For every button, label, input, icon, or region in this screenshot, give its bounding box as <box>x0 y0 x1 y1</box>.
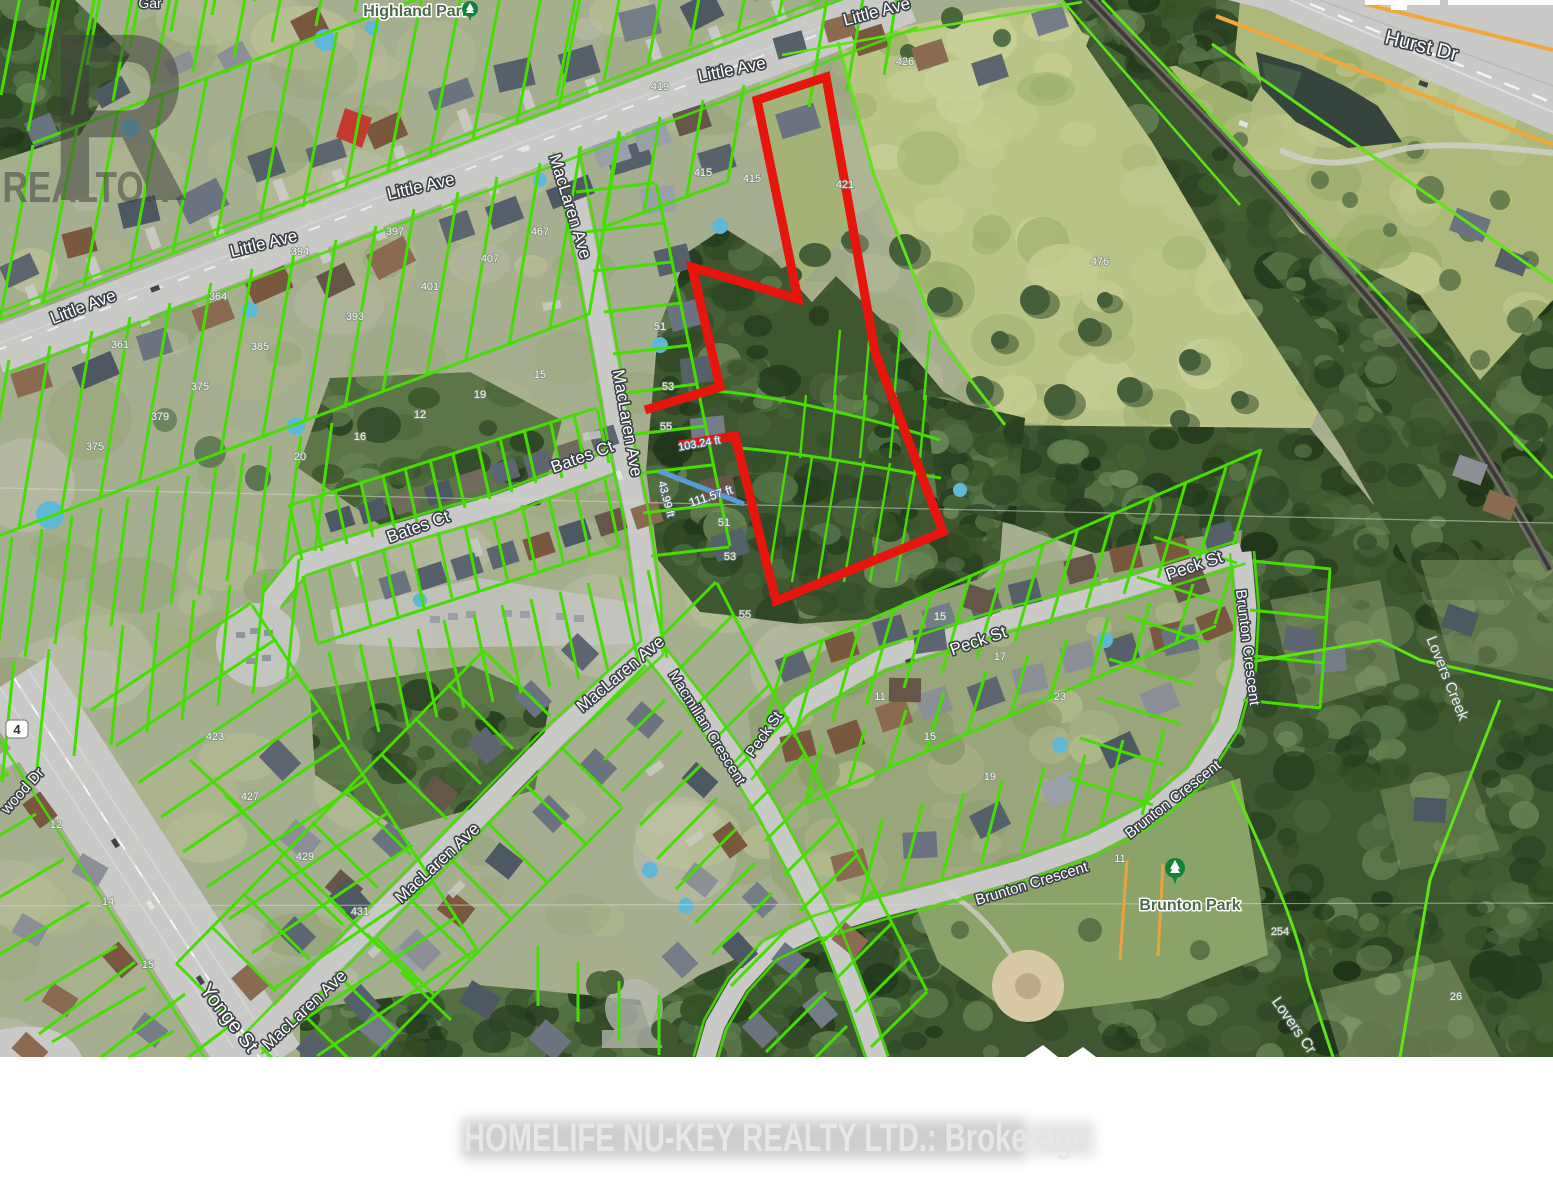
svg-text:379: 379 <box>151 411 169 423</box>
svg-text:REALTOR: REALTOR <box>2 163 169 212</box>
svg-text:407: 407 <box>481 253 499 265</box>
svg-text:Brunton Park: Brunton Park <box>1139 897 1240 914</box>
svg-text:R: R <box>48 0 190 251</box>
svg-text:423: 423 <box>206 731 224 743</box>
svg-text:16: 16 <box>354 431 366 443</box>
svg-text:23: 23 <box>1054 691 1066 703</box>
svg-text:26: 26 <box>1450 991 1462 1003</box>
svg-text:397: 397 <box>386 226 404 238</box>
svg-text:11: 11 <box>1114 853 1125 865</box>
svg-text:364: 364 <box>209 291 227 303</box>
svg-text:394: 394 <box>291 246 309 258</box>
svg-text:419: 419 <box>651 81 669 93</box>
svg-text:12: 12 <box>50 819 62 831</box>
svg-text:15: 15 <box>142 959 154 971</box>
svg-text:467: 467 <box>531 226 549 238</box>
svg-text:375: 375 <box>191 381 209 393</box>
svg-text:15: 15 <box>934 611 946 623</box>
svg-text:55: 55 <box>660 421 672 433</box>
svg-text:15: 15 <box>924 731 936 743</box>
svg-text:361: 361 <box>111 339 129 351</box>
svg-text:HOMELIFE NU-KEY REALTY LTD.: B: HOMELIFE NU-KEY REALTY LTD.: Brokerage <box>464 1116 1089 1160</box>
svg-text:11: 11 <box>874 691 885 703</box>
svg-text:17: 17 <box>994 651 1006 663</box>
svg-text:Highland Park: Highland Park <box>363 3 471 20</box>
svg-text:427: 427 <box>241 791 259 803</box>
svg-text:12: 12 <box>414 409 426 421</box>
svg-text:4: 4 <box>13 722 21 737</box>
svg-text:393: 393 <box>346 311 364 323</box>
svg-text:476: 476 <box>1091 256 1109 268</box>
svg-text:15: 15 <box>534 369 546 381</box>
svg-text:19: 19 <box>474 389 486 401</box>
svg-text:51: 51 <box>718 517 730 529</box>
svg-text:53: 53 <box>724 551 736 563</box>
svg-text:429: 429 <box>296 851 314 863</box>
svg-text:401: 401 <box>421 281 439 293</box>
svg-text:55: 55 <box>739 609 751 621</box>
svg-text:51: 51 <box>654 321 666 333</box>
svg-text:53: 53 <box>662 381 674 393</box>
svg-text:19: 19 <box>984 771 996 783</box>
svg-text:415: 415 <box>743 173 761 185</box>
svg-text:385: 385 <box>251 341 269 353</box>
svg-text:14: 14 <box>102 896 114 908</box>
svg-text:415: 415 <box>694 167 712 179</box>
svg-text:254: 254 <box>1271 926 1289 938</box>
svg-text:426: 426 <box>896 56 914 68</box>
svg-text:421: 421 <box>836 179 854 191</box>
svg-text:20: 20 <box>294 451 306 463</box>
svg-text:431: 431 <box>351 906 369 918</box>
svg-text:375: 375 <box>86 441 104 453</box>
